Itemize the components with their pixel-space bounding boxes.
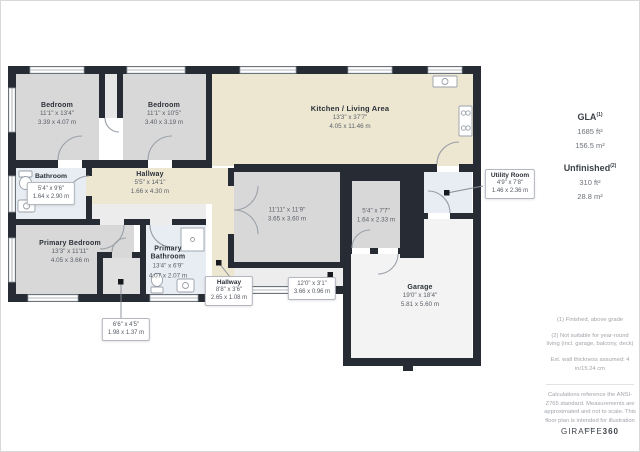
footnote-1: (1) Finished, above grade	[544, 316, 636, 325]
kitchen-sink-icon	[433, 76, 457, 87]
closet-2-floor	[103, 258, 140, 294]
bedroom-2-floor	[123, 74, 206, 160]
callout-dims-imperial: 8'8" x 3'6"	[211, 286, 247, 294]
stove-icon	[459, 106, 472, 136]
callout-dims-imperial: 5'4" x 9'6"	[33, 185, 69, 193]
callout-dims-imperial: 6'6" x 4'5"	[108, 321, 144, 329]
callout-dims-metric: 1.46 x 2.36 m	[491, 187, 529, 195]
callout-bathroom: 5'4" x 9'6" 1.64 x 2.90 m	[27, 182, 75, 205]
callout-dims-metric: 1.64 x 2.90 m	[33, 193, 69, 201]
callout-closet: 6'6" x 4'5" 1.98 x 1.37 m	[102, 318, 150, 341]
unfinished-sqm: 28.8 m²	[542, 192, 638, 201]
callout-utility-room: Utility Room 4'9" x 7'8" 1.46 x 2.36 m	[485, 169, 535, 199]
callout-hallway-2: Hallway 8'8" x 3'6" 2.65 x 1.08 m	[205, 276, 253, 306]
footnote-2: (2) Not suitable for year-round living (…	[544, 332, 636, 349]
summary-panel: GLA(1) 1685 ft² 156.5 m² Unfinished(2) 3…	[540, 0, 640, 452]
gla-footnote-marker: (1)	[596, 112, 602, 118]
gla-block: GLA(1) 1685 ft² 156.5 m²	[542, 112, 638, 150]
callout-dims-metric: 2.65 x 1.08 m	[211, 294, 247, 302]
callout-dims-imperial: 4'9" x 7'8"	[491, 179, 529, 187]
toilet-2-icon	[151, 274, 163, 294]
floorplan-page: Bedroom 11'1" x 13'4" 3.39 x 4.07 m Bedr…	[0, 0, 640, 452]
middle-room-floor	[234, 172, 340, 262]
callout-dims-metric: 1.98 x 1.37 m	[108, 329, 144, 337]
shower-icon	[181, 228, 204, 251]
gla-sqm: 156.5 m²	[542, 141, 638, 150]
callout-dims-metric: 3.66 x 0.96 m	[294, 288, 330, 296]
divider	[546, 384, 634, 385]
sink-2-icon	[177, 279, 194, 292]
unfinished-block: Unfinished(2) 310 ft² 28.8 m²	[542, 163, 638, 201]
gla-heading: GLA(1)	[542, 112, 638, 122]
kitchen-living-floor	[212, 74, 473, 166]
callout-bathroom-name: Bathroom	[35, 173, 67, 180]
callout-corridor: 12'0" x 3'1" 3.66 x 0.96 m	[288, 277, 336, 300]
unfinished-label: Unfinished	[564, 163, 611, 173]
small-room-floor	[352, 181, 400, 248]
footnote-3: Ext. wall thickness assumed: 4 in/15.24 …	[544, 356, 636, 373]
callout-dims-imperial: 12'0" x 3'1"	[294, 280, 330, 288]
unfinished-footnote-marker: (2)	[610, 163, 616, 169]
unfinished-heading: Unfinished(2)	[542, 163, 638, 173]
callout-name: Utility Room	[491, 172, 529, 179]
unfinished-sqft: 310 ft²	[542, 178, 638, 187]
footnotes: (1) Finished, above grade (2) Not suitab…	[544, 316, 636, 380]
gla-label: GLA	[577, 112, 596, 122]
giraffe360-logo: GIRAFFE360	[542, 427, 638, 436]
callout-name: Hallway	[211, 279, 247, 286]
logo-brand-text: GIRAFFE	[561, 427, 603, 436]
closet-floor	[105, 74, 117, 118]
hallway-floor	[86, 168, 234, 204]
gla-sqft: 1685 ft²	[542, 127, 638, 136]
bedroom-1-floor	[16, 74, 99, 160]
logo-suffix-text: 360	[603, 427, 619, 436]
